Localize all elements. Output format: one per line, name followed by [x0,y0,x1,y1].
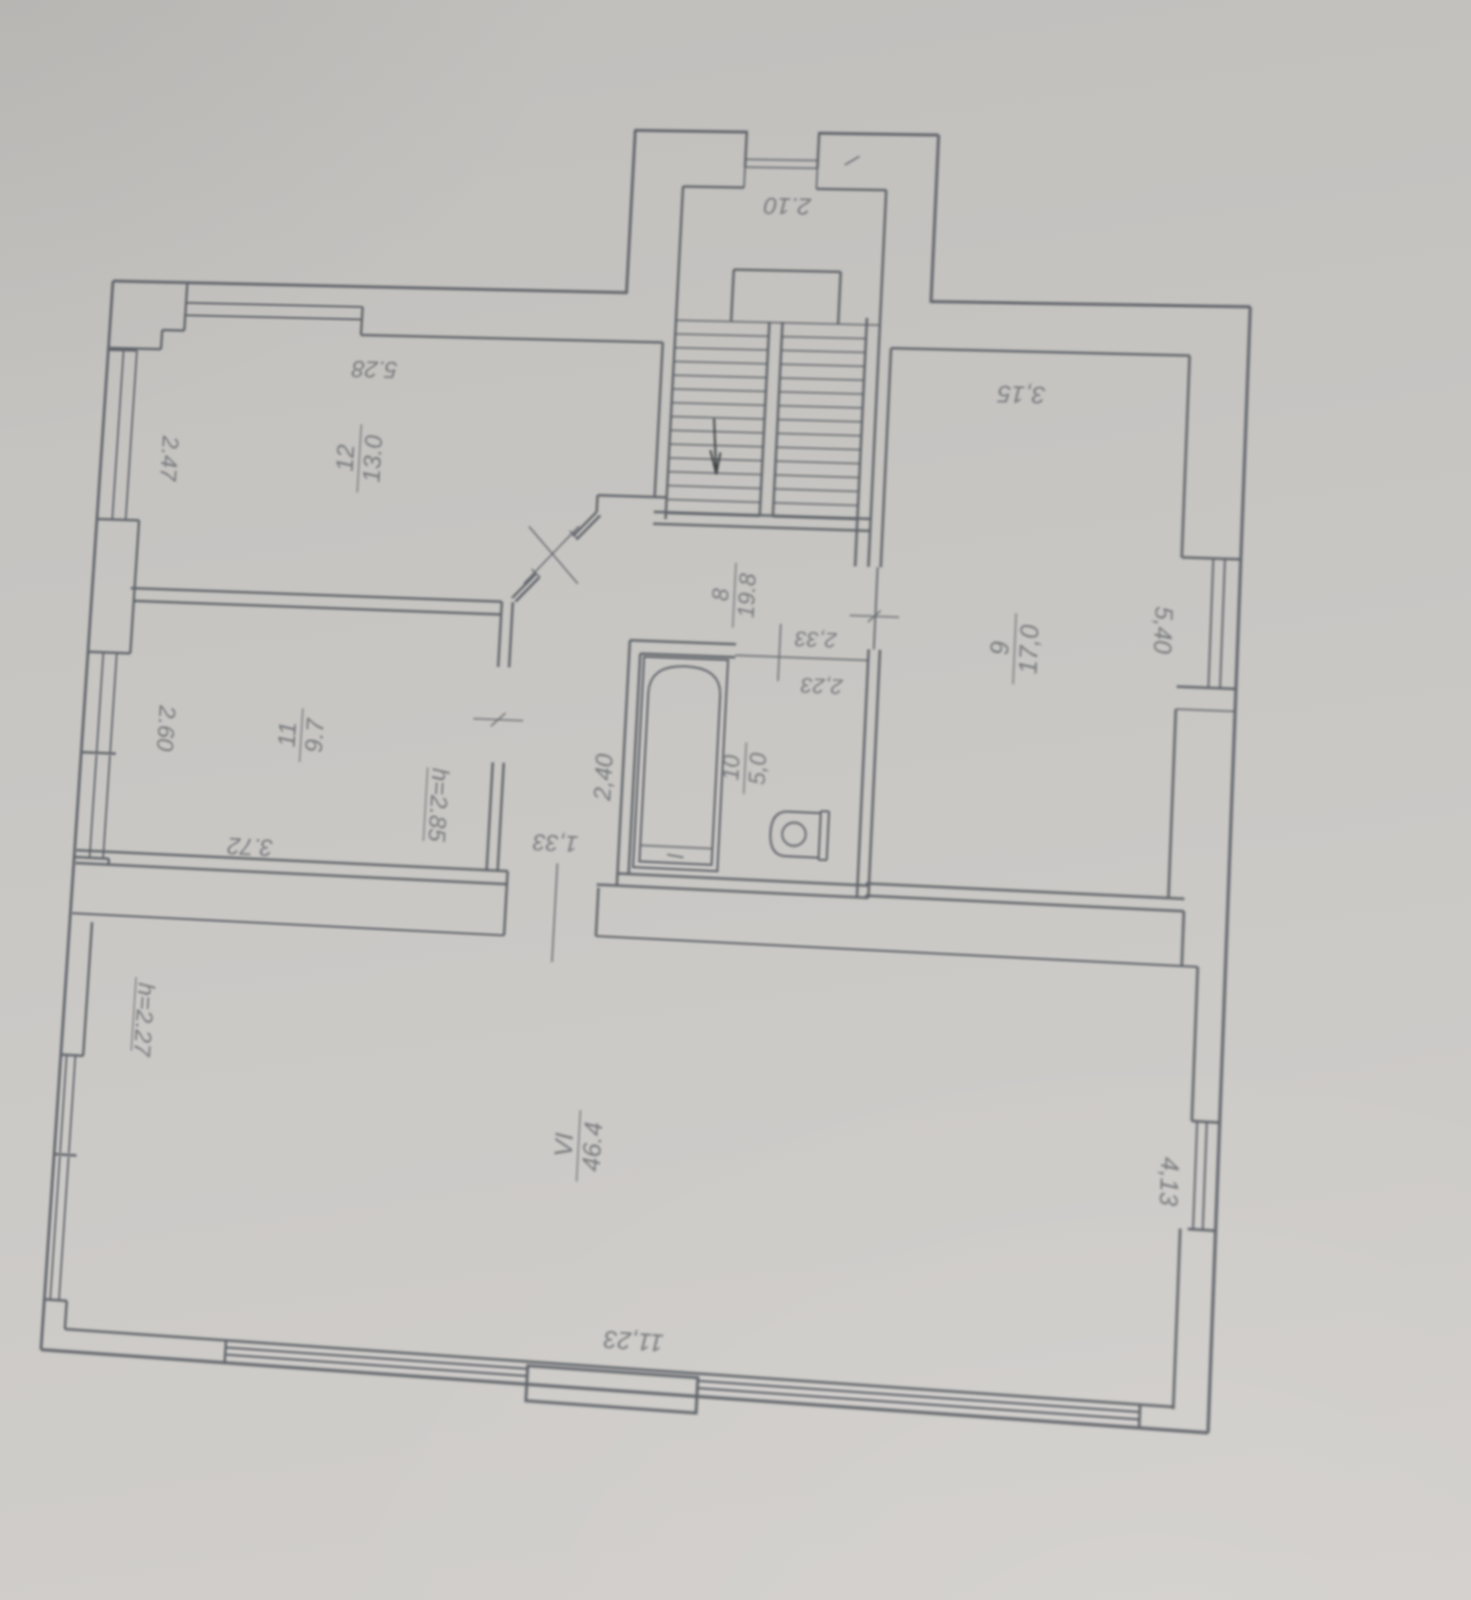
svg-text:11: 11 [274,721,302,748]
svg-text:4,13: 4,13 [1154,1156,1185,1207]
svg-text:5.28: 5.28 [351,356,399,384]
svg-text:2,23: 2,23 [800,673,844,698]
svg-text:8: 8 [707,588,734,602]
svg-text:17,0: 17,0 [1014,624,1045,674]
svg-text:h=2.85: h=2.85 [423,767,455,842]
svg-text:11,23: 11,23 [603,1325,665,1358]
svg-text:12: 12 [332,444,360,472]
svg-text:46.4: 46.4 [578,1121,609,1172]
svg-text:5,40: 5,40 [1148,606,1179,655]
svg-text:VI: VI [550,1132,579,1158]
svg-text:2.47: 2.47 [155,434,184,482]
svg-text:19.8: 19.8 [732,573,761,619]
svg-text:9: 9 [986,641,1015,656]
svg-text:5,0: 5,0 [743,752,772,785]
svg-text:13.0: 13.0 [359,435,389,483]
svg-text:9.7: 9.7 [301,717,330,753]
svg-text:2,33: 2,33 [794,626,838,651]
svg-text:2.60: 2.60 [152,704,182,752]
svg-text:10: 10 [717,754,745,781]
svg-text:2,40: 2,40 [588,753,618,802]
svg-text:3.72: 3.72 [226,832,274,861]
svg-text:1,33: 1,33 [532,829,578,858]
svg-text:3,15: 3,15 [996,380,1046,409]
svg-text:2.10: 2.10 [763,193,813,221]
